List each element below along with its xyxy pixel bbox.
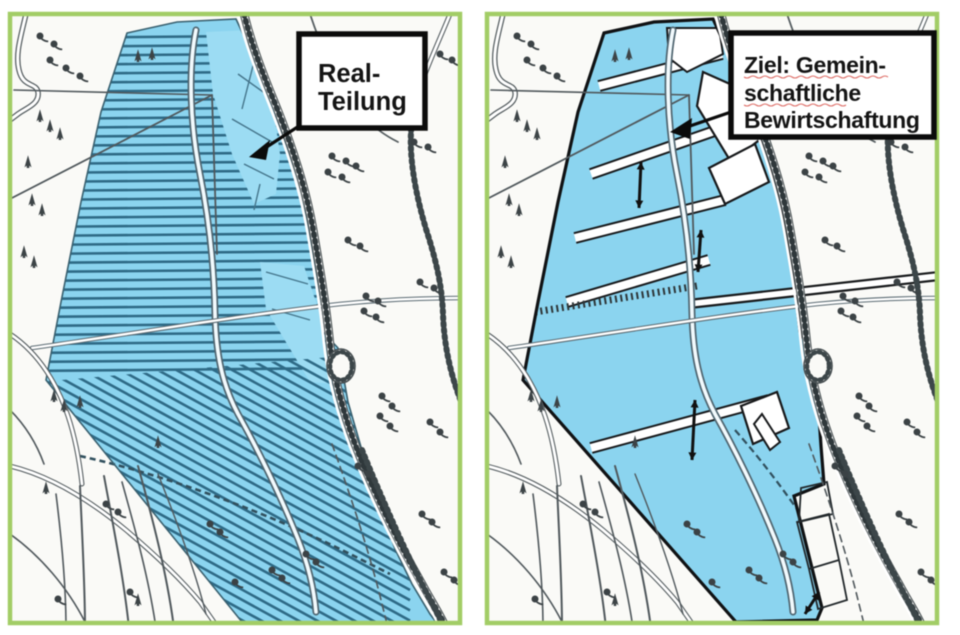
svg-text:Teilung: Teilung — [318, 88, 407, 116]
svg-text:schaftliche: schaftliche — [744, 80, 861, 106]
svg-text:Bewirtschaftung: Bewirtschaftung — [744, 107, 920, 133]
svg-text:Real-: Real- — [318, 60, 380, 88]
svg-text:Ziel: Gemein-: Ziel: Gemein- — [744, 52, 886, 78]
